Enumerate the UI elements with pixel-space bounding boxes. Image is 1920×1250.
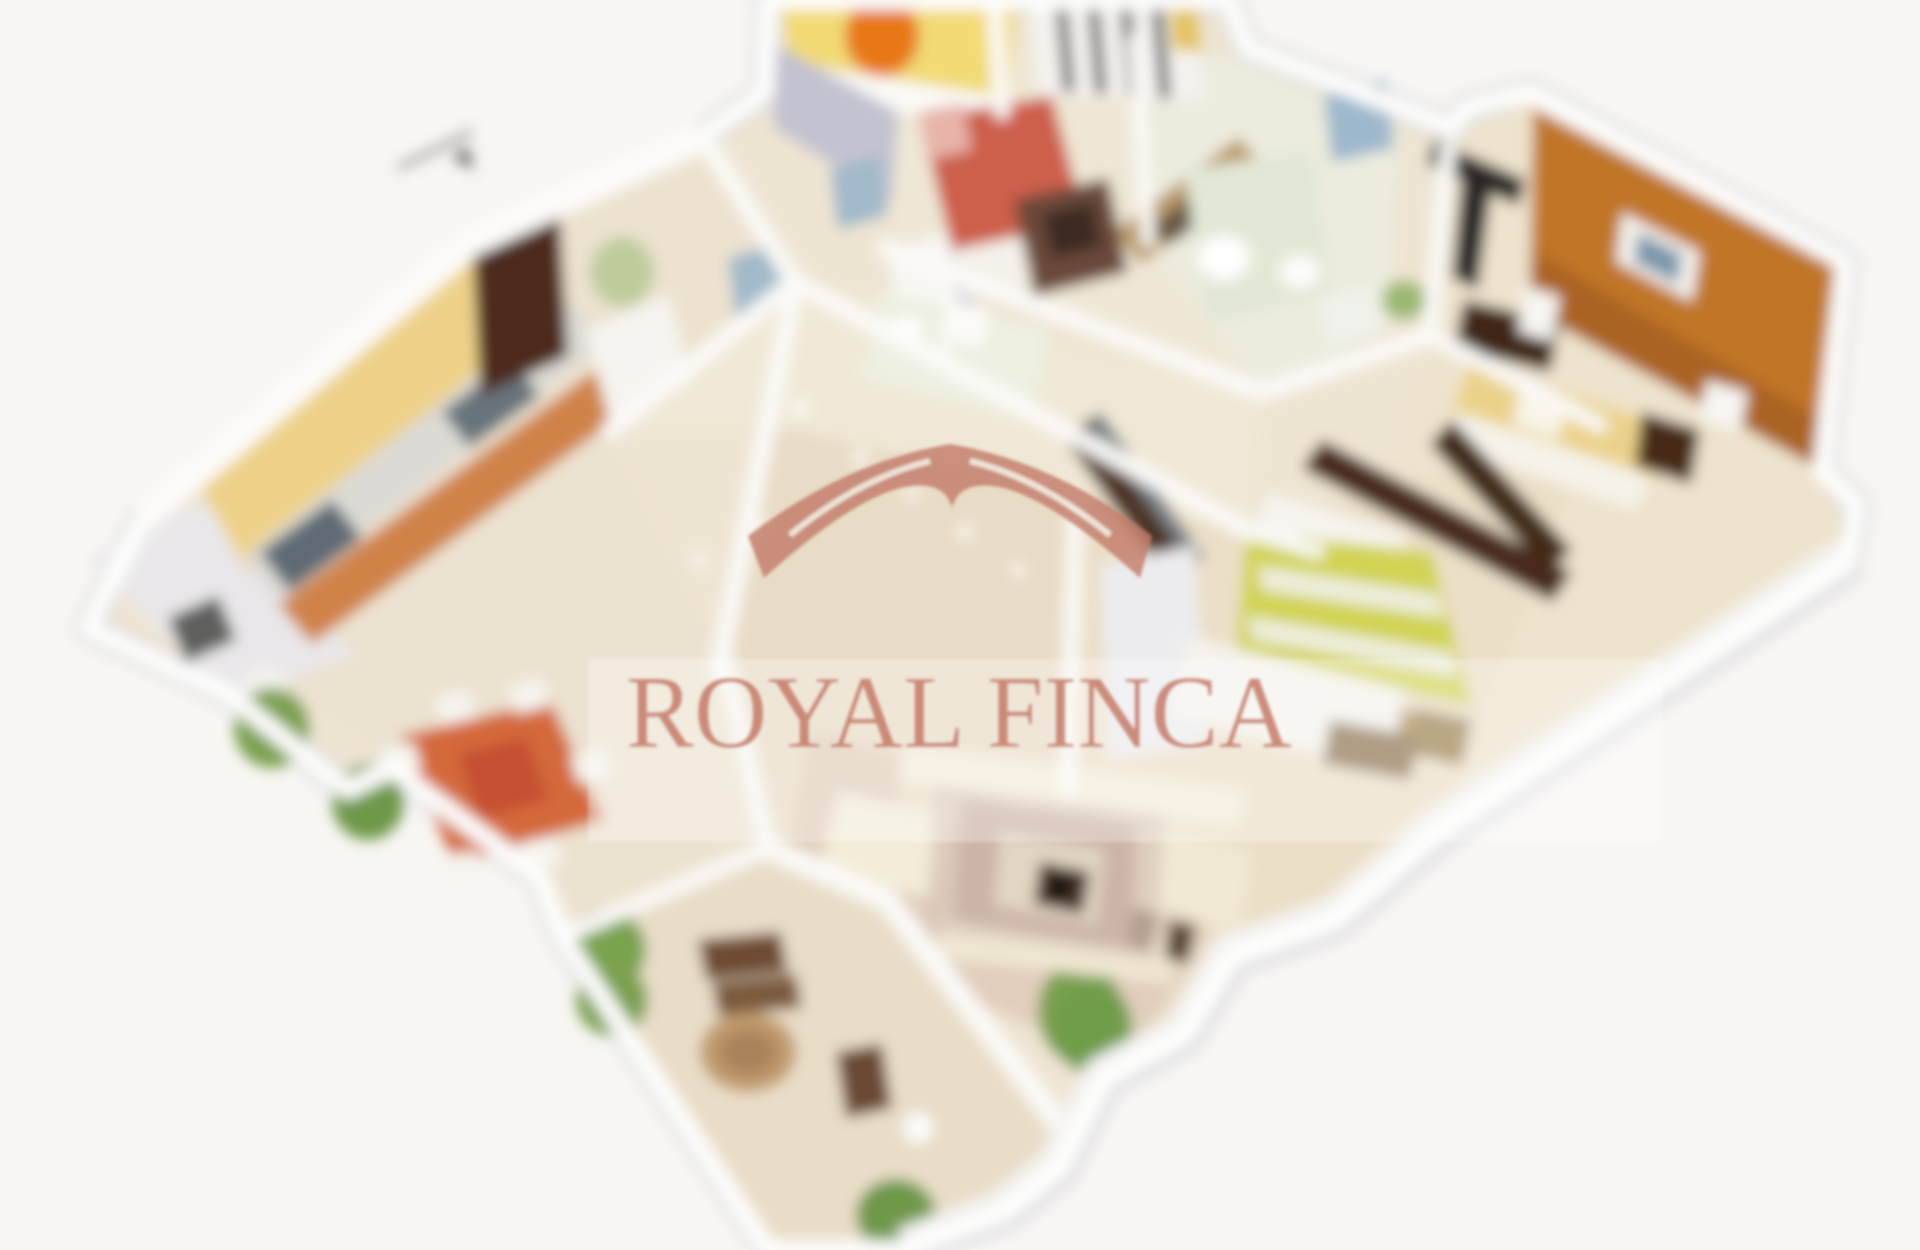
- svg-text:ROYAL FINCA: ROYAL FINCA: [626, 655, 1292, 770]
